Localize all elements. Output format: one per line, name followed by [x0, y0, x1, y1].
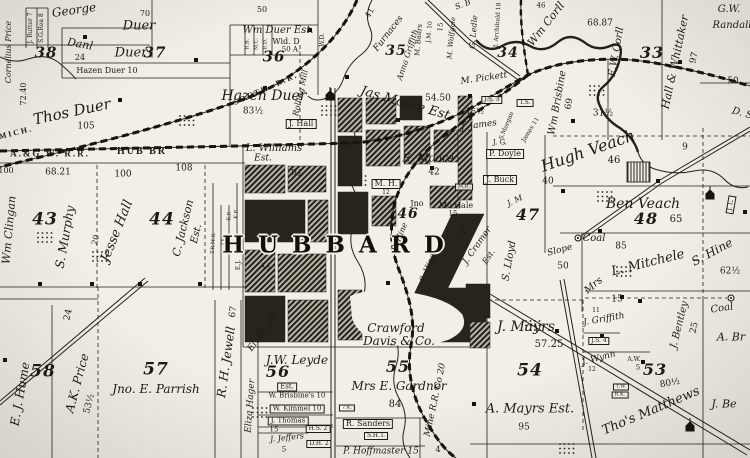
map-label: S. Lloyd	[502, 240, 519, 282]
map-label: 15	[611, 296, 622, 305]
plat-map-canvas: GeorgeDuer70DanlDuer373824Hazen Duer 10J…	[0, 0, 750, 458]
map-label: M. Baars	[414, 24, 424, 57]
map-label: 35	[385, 44, 406, 58]
map-label: 48	[634, 211, 658, 227]
map-label: P. Doyle	[486, 149, 524, 159]
map-label: J. Griffith	[583, 312, 626, 328]
map-label: Cornelius Price	[5, 21, 13, 84]
map-label: E. J. Hume	[8, 361, 31, 427]
map-label: El. Hager	[247, 312, 279, 353]
map-label: T.S.	[517, 99, 534, 107]
map-label: J. Buck	[483, 175, 517, 185]
map-label: W. Kimmel 10	[270, 405, 325, 414]
map-label: 68.87	[587, 20, 613, 29]
map-label: 25	[689, 321, 701, 334]
map-label: Crawford	[367, 322, 424, 334]
map-label: 44	[149, 212, 175, 229]
map-label: 15½	[466, 108, 484, 116]
map-label: A.J.	[260, 264, 272, 271]
map-label: Mrs	[583, 276, 605, 297]
map-label: 46	[537, 3, 546, 10]
map-label: D. S	[731, 106, 750, 121]
map-label: HUB BR	[117, 147, 167, 157]
map-label: 95	[518, 424, 529, 433]
map-label: 31½	[593, 110, 613, 119]
map-label: M. Wolfgale	[447, 17, 458, 60]
map-label: J.M. 10	[426, 21, 434, 43]
map-label: 12	[382, 190, 390, 196]
map-label: 47	[516, 207, 540, 223]
map-label: 43	[32, 212, 58, 229]
map-label: 33	[640, 45, 664, 61]
map-label: A. Mayrs Est.	[486, 403, 575, 416]
map-label: 37	[144, 46, 167, 61]
map-label: 36	[263, 50, 286, 65]
map-label: Duer	[115, 47, 148, 60]
map-label: S.H.T.	[364, 432, 388, 440]
map-label: 105	[77, 123, 94, 132]
map-label: S.Morgan	[499, 111, 516, 141]
map-label: 70	[140, 10, 150, 18]
map-label: 27	[458, 225, 470, 238]
map-label: Coal	[583, 234, 606, 244]
map-label: 46	[397, 207, 418, 221]
map-label: 15	[449, 211, 458, 218]
map-label: 69	[565, 98, 576, 111]
map-label: 24	[75, 54, 85, 62]
map-label: 57	[143, 362, 169, 379]
map-label: J. Wynn	[581, 350, 617, 368]
map-label: Est.	[190, 223, 204, 244]
map-label: J. Jeffers	[270, 432, 305, 444]
map-label: J. Thomas	[268, 417, 309, 426]
map-label: Eliza Hager	[245, 379, 258, 433]
map-label: G. Ledle	[469, 15, 480, 49]
map-label: Davis & Co.	[363, 335, 435, 347]
map-label: Wm Clingan	[1, 195, 18, 264]
map-label: 56	[266, 364, 290, 380]
map-label: 67	[229, 306, 240, 319]
map-label: E.J.	[236, 260, 242, 270]
map-label: 12	[588, 367, 596, 373]
map-label: J. G.	[493, 140, 507, 147]
map-label: Mine R.R. Co 20	[424, 362, 448, 437]
map-label: Wm Duer Est.	[243, 26, 314, 36]
map-label: M. H.	[372, 179, 401, 189]
map-label: 40	[542, 178, 553, 187]
map-label: S.G.Rea 8	[39, 13, 45, 43]
map-label: J.S. 3	[481, 96, 502, 104]
map-label: E. Moore	[402, 153, 453, 164]
map-label: 34	[497, 46, 518, 60]
map-label: Duer	[123, 20, 156, 33]
map-label: 58	[30, 364, 56, 381]
map-label: 53	[643, 362, 667, 378]
map-label: A.&G.W. R.R.	[10, 150, 90, 159]
map-label: 4	[435, 446, 440, 454]
map-label: 24	[63, 308, 74, 321]
map-label: R. Sanders	[343, 419, 393, 429]
map-label: 62½	[720, 268, 740, 277]
map-label: D.J.	[291, 170, 303, 177]
map-label: Wm Corll	[525, 0, 566, 48]
map-label: T.R.M.G.	[211, 232, 217, 254]
map-label: 85	[615, 243, 626, 252]
map-label: G.W.	[718, 5, 741, 15]
map-label: W. Brisbine's 10	[269, 393, 326, 400]
town-name-label: HUBBARD	[222, 234, 458, 257]
map-label: 7.K.	[339, 405, 355, 412]
map-label: E.F.	[227, 211, 233, 221]
map-label: Jas Moore Est.	[359, 84, 455, 123]
map-label: 80½	[659, 378, 680, 390]
map-label: 11	[592, 308, 600, 314]
map-label: M.C.	[255, 38, 260, 50]
map-label: 46	[608, 156, 621, 166]
map-label: D.H. 2	[306, 440, 331, 448]
map-labels-layer: GeorgeDuer70DanlDuer373824Hazen Duer 10J…	[0, 0, 750, 458]
map-label: J. Rutter 7	[28, 12, 34, 43]
map-label: J. L.	[726, 196, 737, 215]
map-label: 53½	[83, 393, 97, 415]
map-label: A. Br	[717, 332, 745, 343]
map-label: J.S. 4	[588, 337, 609, 345]
map-label: E.D.	[264, 39, 269, 50]
map-label: M. Pickett	[460, 71, 508, 86]
map-label: J. James	[461, 119, 498, 133]
map-label: R.K.	[612, 392, 629, 399]
map-label: Danl	[66, 36, 93, 51]
map-label: Randall	[713, 21, 750, 31]
map-label: MICH.	[0, 125, 34, 141]
map-label: 50	[557, 263, 568, 272]
map-label: Est.	[481, 248, 497, 265]
map-label: 15	[437, 22, 445, 31]
map-label: 20	[91, 234, 101, 246]
map-label: 42	[428, 169, 439, 178]
map-label: 72.40	[20, 83, 28, 106]
map-label: 50	[257, 6, 267, 14]
map-label: S. Hine	[690, 236, 735, 268]
map-label: Coal	[710, 302, 734, 315]
map-label: 83½	[243, 108, 263, 117]
map-label: Jno. E. Parrish	[112, 383, 199, 395]
map-label: T.W.	[613, 384, 629, 391]
map-label: 15	[270, 427, 279, 434]
map-label: H.S. 2	[306, 425, 331, 433]
map-label: L. Mitchele	[610, 248, 686, 279]
map-label: M.B.	[455, 184, 473, 191]
map-label: 5	[282, 447, 286, 454]
map-label: L. Williams	[246, 144, 302, 154]
map-label: George	[51, 1, 97, 19]
map-label: 97	[689, 51, 700, 64]
map-label: 68.21	[45, 169, 71, 178]
map-label: 5	[636, 365, 640, 372]
map-label: 65	[670, 215, 683, 225]
map-label: J. Mayrs	[497, 320, 555, 334]
map-label: J. Be	[711, 399, 736, 410]
map-label: Est.	[254, 155, 272, 164]
map-label: S. B	[454, 0, 472, 12]
map-label: 55	[386, 359, 410, 375]
map-label: 54.50	[425, 95, 451, 104]
map-label: 50	[727, 78, 738, 87]
map-label: Hall & Whittaker	[660, 14, 691, 110]
map-label: 54	[517, 363, 543, 380]
map-label: Thos Duer	[32, 96, 112, 127]
map-label: E.W. Corll	[608, 26, 627, 77]
map-label: K.F.	[234, 209, 240, 219]
map-label: Slope	[546, 243, 573, 258]
map-label: Hazen Duer 10	[76, 67, 137, 75]
map-label: 41	[364, 7, 376, 20]
map-label: 57.25	[535, 340, 564, 350]
map-label: J. Archibald 18	[493, 2, 502, 47]
map-label: 100	[114, 171, 131, 180]
map-label: A.W.	[627, 357, 640, 363]
map-label: 84	[389, 400, 402, 410]
map-label: W.D.	[320, 33, 326, 47]
map-label: Est.	[277, 383, 297, 392]
map-label: Jesse Hall	[99, 198, 136, 264]
map-label: P. Hoffmaster 15	[343, 448, 419, 457]
map-label: J. Bentley	[669, 300, 690, 349]
map-label: James 11	[521, 117, 541, 144]
map-label: 38	[35, 46, 58, 61]
map-label: R.B.	[246, 39, 251, 50]
map-label: 108	[175, 165, 192, 174]
map-label: J. Hall	[286, 119, 317, 129]
map-label: R. H. Jewell	[215, 326, 237, 399]
map-label: 9	[682, 144, 688, 153]
map-label: 100	[0, 167, 14, 175]
